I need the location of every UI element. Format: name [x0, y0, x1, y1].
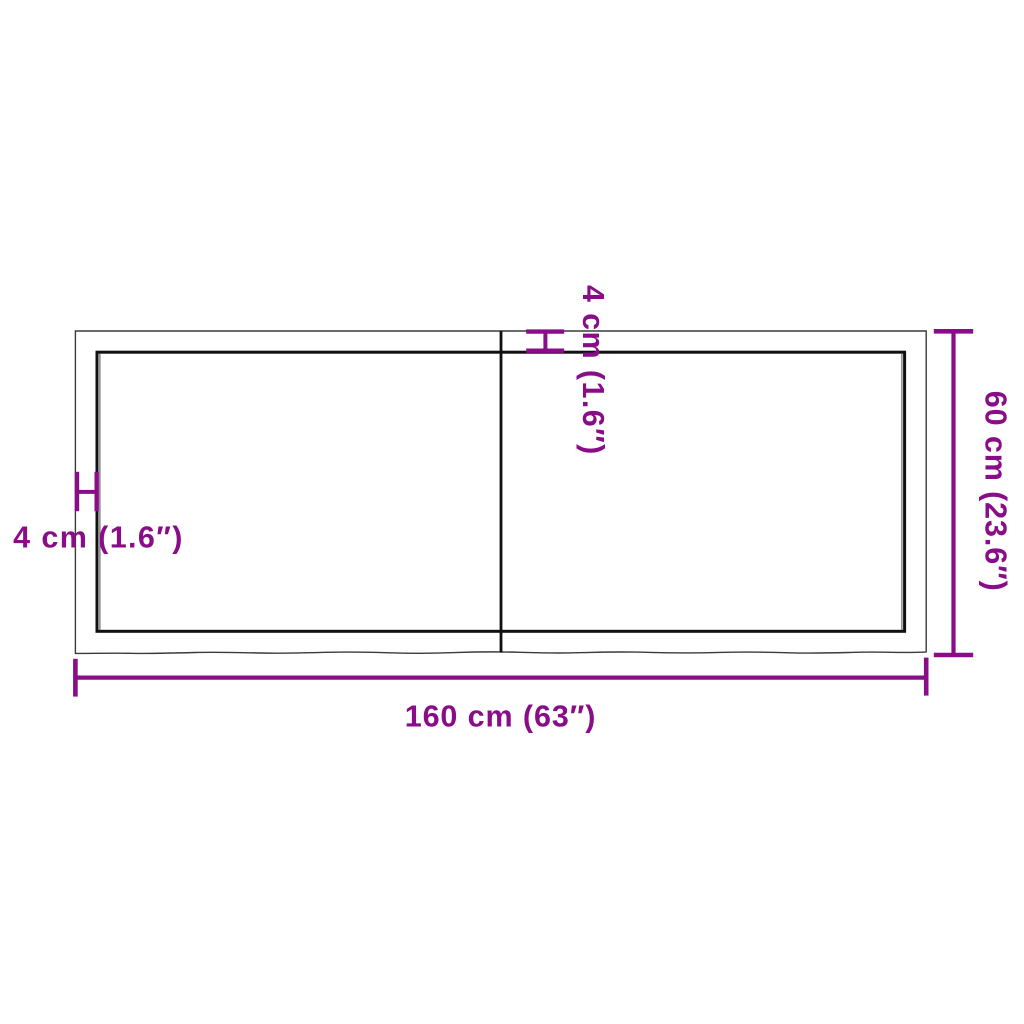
svg-text:4 cm (1.6″): 4 cm (1.6″) [13, 521, 184, 555]
svg-text:60 cm (23.6″): 60 cm (23.6″) [978, 391, 1012, 592]
svg-text:4 cm (1.6″): 4 cm (1.6″) [576, 285, 610, 456]
svg-text:160 cm (63″): 160 cm (63″) [405, 700, 597, 734]
